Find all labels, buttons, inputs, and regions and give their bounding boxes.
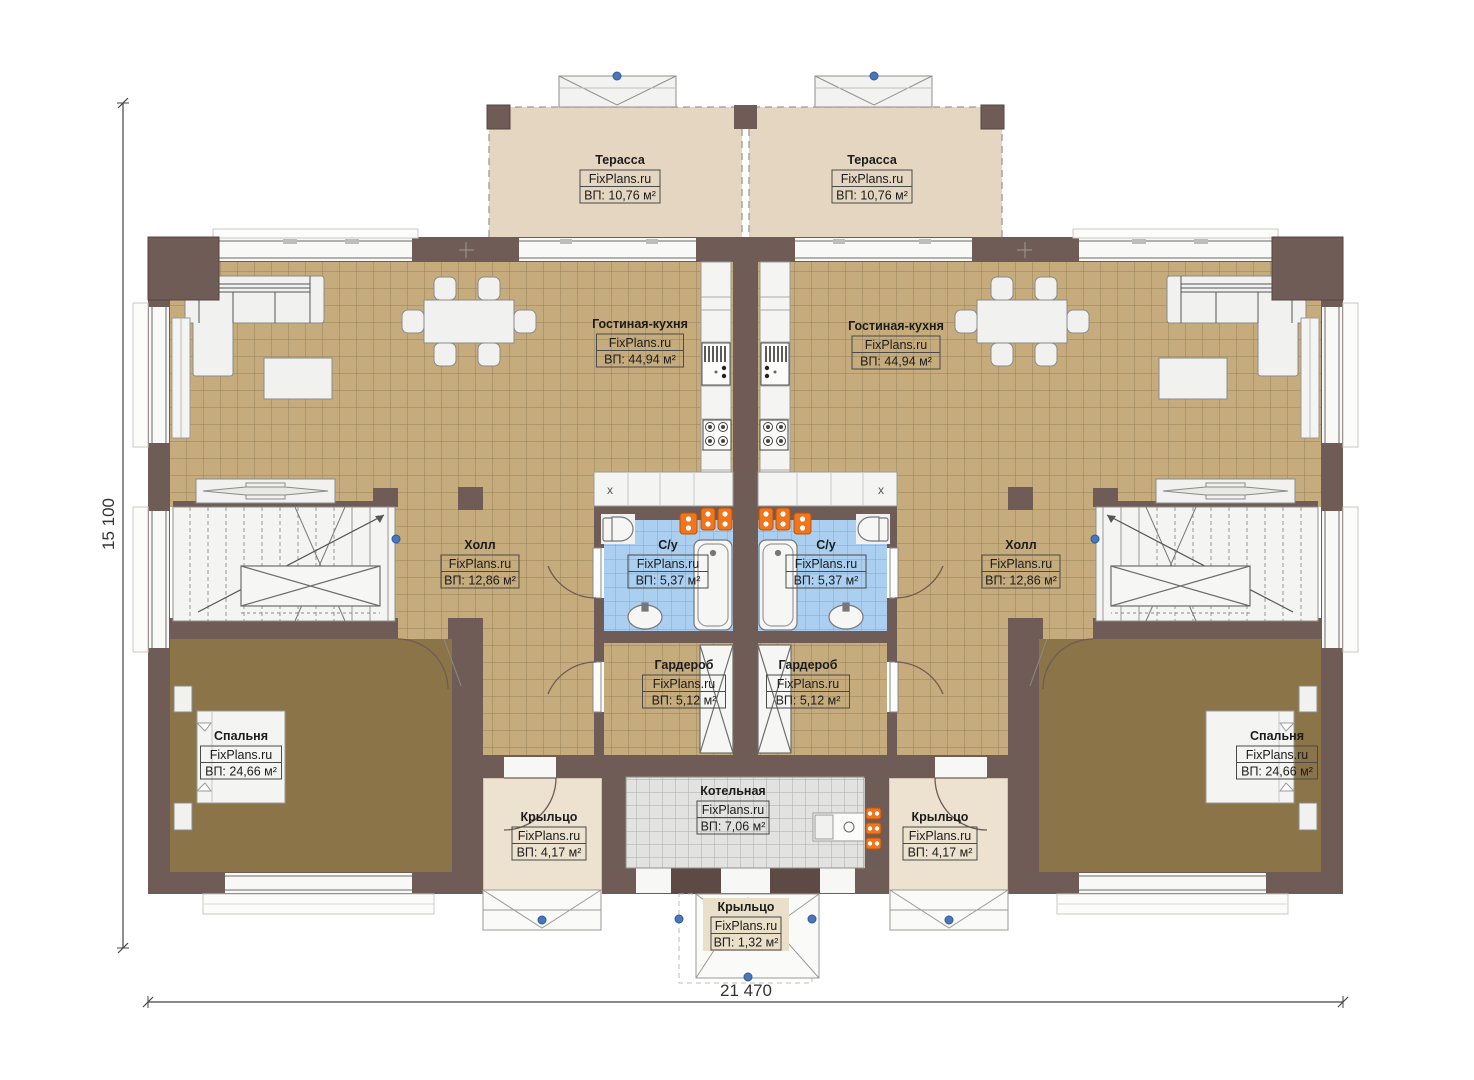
svg-text:ВП: 5,37 м²: ВП: 5,37 м² bbox=[636, 574, 701, 588]
svg-text:ВП: 1,32 м²: ВП: 1,32 м² bbox=[714, 936, 779, 950]
svg-text:Крыльцо: Крыльцо bbox=[718, 900, 775, 914]
svg-text:Гостиная-кухня: Гостиная-кухня bbox=[848, 319, 944, 333]
svg-text:Крыльцо: Крыльцо bbox=[912, 810, 969, 824]
svg-text:Гостиная-кухня: Гостиная-кухня bbox=[592, 317, 688, 331]
svg-text:Холл: Холл bbox=[464, 538, 495, 552]
svg-text:Терасса: Терасса bbox=[847, 153, 898, 167]
svg-text:15 100: 15 100 bbox=[99, 498, 118, 550]
svg-text:ВП: 44,94 м²: ВП: 44,94 м² bbox=[604, 353, 676, 367]
svg-text:FixPlans.ru: FixPlans.ru bbox=[449, 557, 512, 571]
svg-text:FixPlans.ru: FixPlans.ru bbox=[1246, 748, 1309, 762]
svg-text:ВП: 5,12 м²: ВП: 5,12 м² bbox=[776, 694, 841, 708]
svg-text:FixPlans.ru: FixPlans.ru bbox=[990, 557, 1053, 571]
svg-text:FixPlans.ru: FixPlans.ru bbox=[909, 829, 972, 843]
svg-text:ВП: 10,76 м²: ВП: 10,76 м² bbox=[584, 189, 656, 203]
svg-text:Гардероб: Гардероб bbox=[778, 658, 837, 672]
svg-text:Спальня: Спальня bbox=[1250, 729, 1304, 743]
svg-text:С/у: С/у bbox=[658, 538, 678, 552]
svg-text:ВП: 7,06 м²: ВП: 7,06 м² bbox=[701, 820, 766, 834]
svg-text:ВП: 10,76 м²: ВП: 10,76 м² bbox=[836, 189, 908, 203]
svg-text:FixPlans.ru: FixPlans.ru bbox=[795, 557, 858, 571]
svg-text:FixPlans.ru: FixPlans.ru bbox=[653, 677, 716, 691]
svg-text:FixPlans.ru: FixPlans.ru bbox=[865, 338, 928, 352]
svg-text:ВП: 5,12 м²: ВП: 5,12 м² bbox=[652, 694, 717, 708]
svg-text:ВП: 4,17 м²: ВП: 4,17 м² bbox=[517, 846, 582, 860]
svg-text:Котельная: Котельная bbox=[700, 784, 765, 798]
svg-text:FixPlans.ru: FixPlans.ru bbox=[702, 803, 765, 817]
svg-text:ВП: 44,94 м²: ВП: 44,94 м² bbox=[860, 355, 932, 369]
svg-text:FixPlans.ru: FixPlans.ru bbox=[841, 172, 904, 186]
svg-text:С/у: С/у bbox=[816, 538, 836, 552]
svg-text:FixPlans.ru: FixPlans.ru bbox=[210, 748, 273, 762]
svg-text:FixPlans.ru: FixPlans.ru bbox=[715, 919, 778, 933]
svg-text:ВП: 12,86 м²: ВП: 12,86 м² bbox=[985, 574, 1057, 588]
svg-text:ВП: 12,86 м²: ВП: 12,86 м² bbox=[444, 574, 516, 588]
svg-text:ВП: 5,37 м²: ВП: 5,37 м² bbox=[794, 574, 859, 588]
svg-text:Холл: Холл bbox=[1005, 538, 1036, 552]
svg-text:FixPlans.ru: FixPlans.ru bbox=[637, 557, 700, 571]
svg-text:ВП: 24,66 м²: ВП: 24,66 м² bbox=[1241, 765, 1313, 779]
svg-text:FixPlans.ru: FixPlans.ru bbox=[777, 677, 840, 691]
svg-text:ВП: 24,66 м²: ВП: 24,66 м² bbox=[205, 765, 277, 779]
svg-text:Гардероб: Гардероб bbox=[654, 658, 713, 672]
svg-text:FixPlans.ru: FixPlans.ru bbox=[589, 172, 652, 186]
svg-text:Терасса: Терасса bbox=[595, 153, 646, 167]
svg-text:Спальня: Спальня bbox=[214, 729, 268, 743]
svg-text:Крыльцо: Крыльцо bbox=[521, 810, 578, 824]
svg-text:FixPlans.ru: FixPlans.ru bbox=[518, 829, 581, 843]
svg-text:ВП: 4,17 м²: ВП: 4,17 м² bbox=[908, 846, 973, 860]
svg-text:21 470: 21 470 bbox=[720, 981, 772, 1000]
svg-text:FixPlans.ru: FixPlans.ru bbox=[609, 336, 672, 350]
